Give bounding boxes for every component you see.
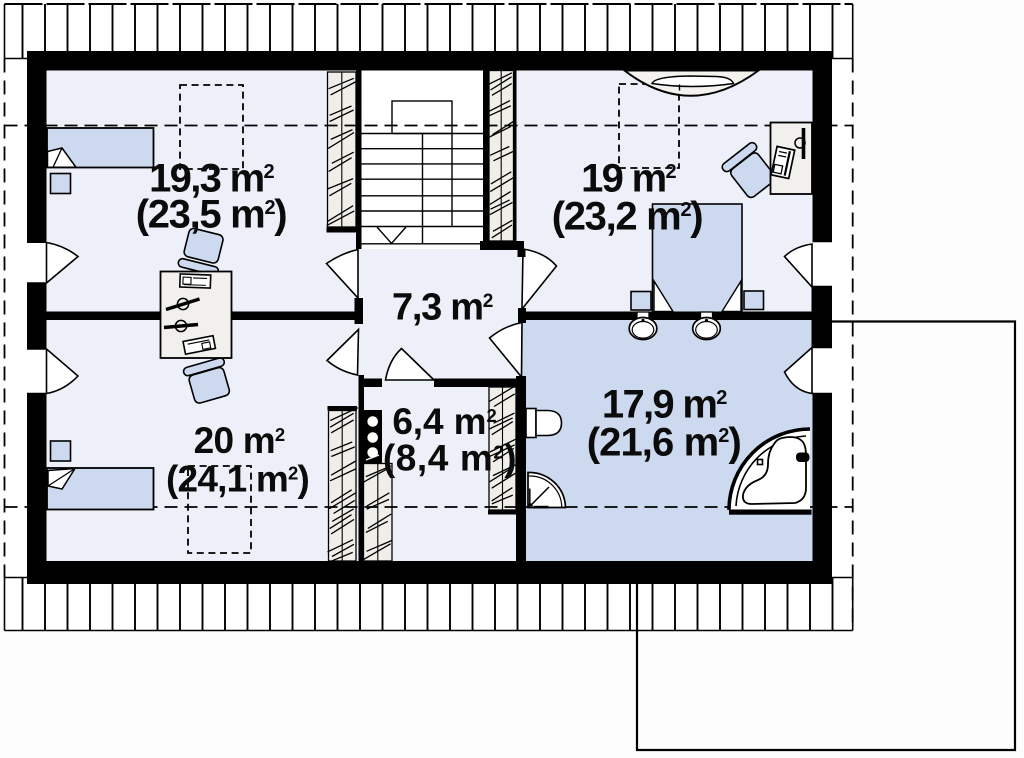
svg-text:6,4 m2: 6,4 m2 [392,401,496,442]
svg-text:(23,5 m2): (23,5 m2) [136,193,287,237]
svg-text:(23,2 m2): (23,2 m2) [552,195,703,239]
svg-text:(21,6 m2): (21,6 m2) [587,421,741,465]
svg-text:7,3 m2: 7,3 m2 [392,287,493,329]
svg-text:20 m2: 20 m2 [194,420,285,461]
svg-text:(24,1 m2): (24,1 m2) [166,458,309,499]
